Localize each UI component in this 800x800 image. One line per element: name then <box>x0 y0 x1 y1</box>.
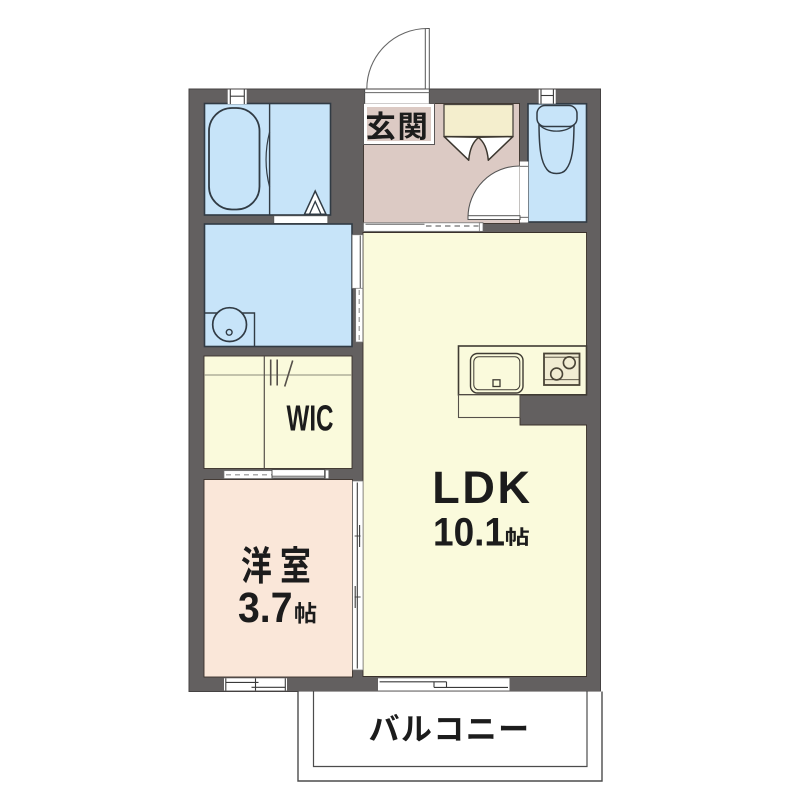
svg-text:WIC: WIC <box>287 398 334 439</box>
svg-text:LDK: LDK <box>432 462 532 513</box>
svg-text:10.1: 10.1 <box>433 511 505 555</box>
svg-text:3.7: 3.7 <box>238 585 293 632</box>
